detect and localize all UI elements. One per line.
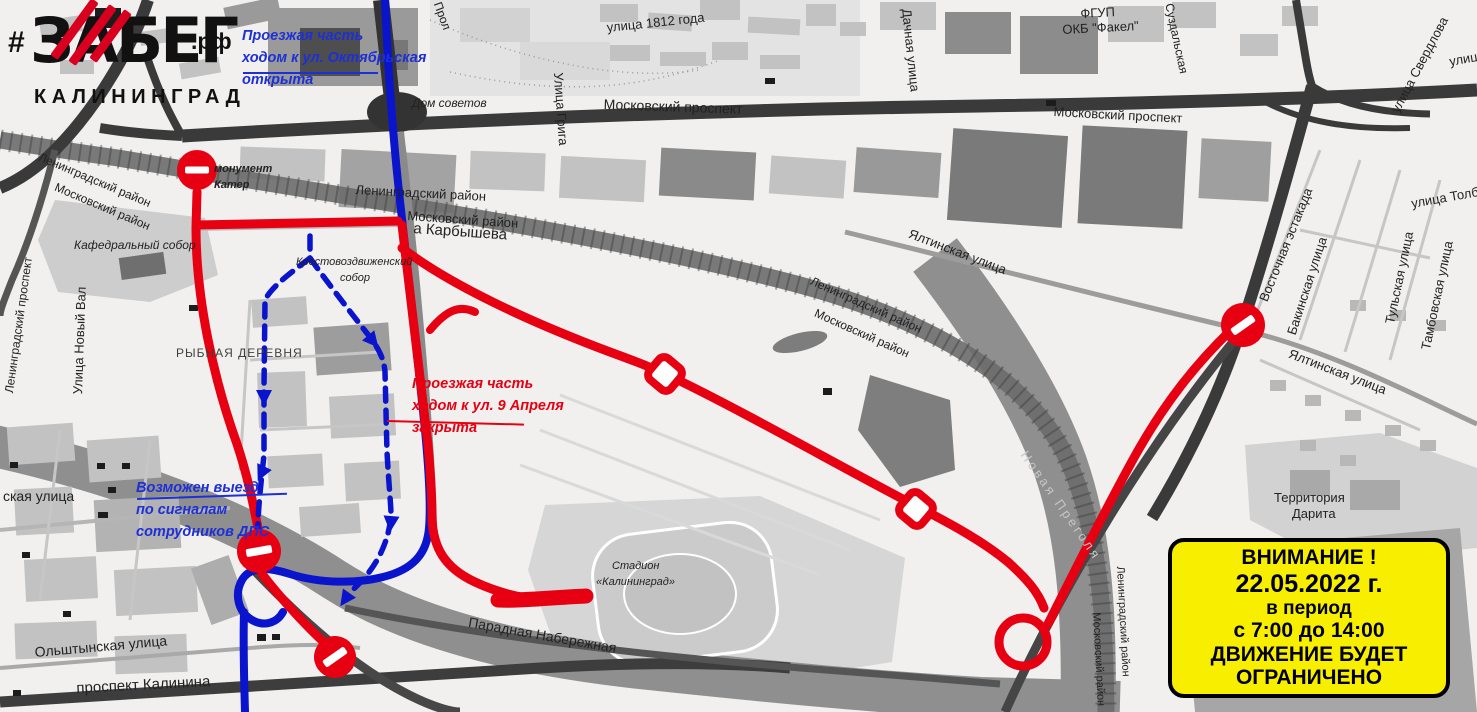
- logo-tld: .рф: [191, 28, 232, 55]
- warning-title: ВНИМАНИЕ !: [1241, 546, 1376, 570]
- warning-box: ВНИМАНИЕ ! 22.05.2022 г. в период с 7:00…: [1168, 538, 1450, 698]
- annotation-line: Проезжая часть: [242, 26, 426, 48]
- annotation-pointer-line: [243, 72, 378, 74]
- road-closure-map-poster: ПролДом советовулица 1812 годаУлица Григ…: [0, 0, 1477, 712]
- logo-hash: #: [8, 26, 25, 60]
- annotation-line: по сигналам: [136, 500, 269, 522]
- warning-text-line: ДВИЖЕНИЕ БУДЕТ: [1211, 643, 1408, 667]
- annotation-april-closed: Проезжая часть ходом к ул. 9 Апреля закр…: [412, 374, 564, 439]
- annotation-line: Проезжая часть: [412, 374, 564, 396]
- annotation-october-open: Проезжая часть ходом к ул. Октябрьская о…: [242, 26, 426, 91]
- warning-text-line: ОГРАНИЧЕНО: [1236, 666, 1382, 690]
- warning-period-label: в период: [1266, 598, 1352, 619]
- annotation-line: сотрудников ДПС: [136, 522, 269, 544]
- logo-wordmark: # ЗАБЕГ .рф: [8, 4, 258, 80]
- annotation-dps-exit: Возможен выезд по сигналам сотрудников Д…: [136, 478, 269, 543]
- annotation-line: ходом к ул. Октябрьская: [242, 48, 426, 70]
- event-logo: # ЗАБЕГ .рф КАЛИНИНГРАД: [8, 4, 258, 109]
- warning-date: 22.05.2022 г.: [1236, 570, 1383, 598]
- warning-time-range: с 7:00 до 14:00: [1233, 619, 1384, 643]
- annotation-line: ходом к ул. 9 Апреля: [412, 396, 564, 418]
- logo-city: КАЛИНИНГРАД: [34, 86, 258, 109]
